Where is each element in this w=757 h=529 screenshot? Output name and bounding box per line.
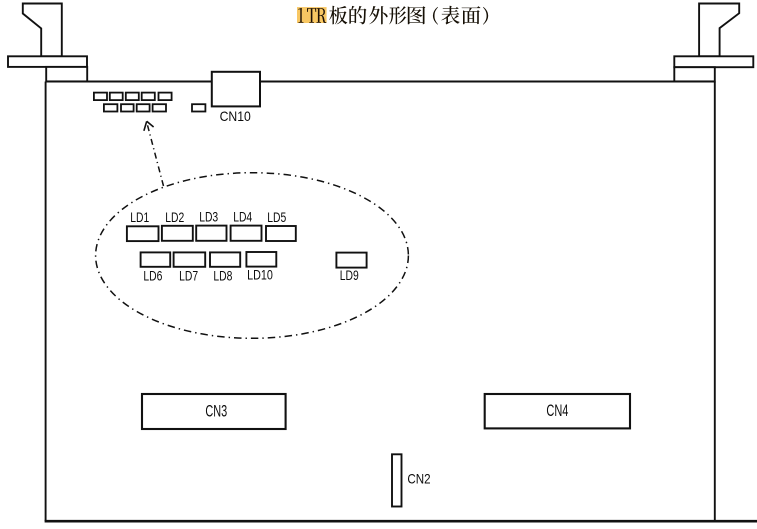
svg-text:LD1: LD1 xyxy=(130,210,149,225)
svg-text:CN2: CN2 xyxy=(407,470,430,486)
svg-text:LD2: LD2 xyxy=(165,210,184,225)
svg-text:LD6: LD6 xyxy=(143,268,162,283)
svg-text:LD9: LD9 xyxy=(340,268,359,283)
svg-text:LD3: LD3 xyxy=(199,210,218,225)
svg-text:CN3: CN3 xyxy=(205,403,227,421)
svg-text:CN10: CN10 xyxy=(220,108,251,124)
svg-text:LD4: LD4 xyxy=(233,210,252,225)
svg-text:LD10: LD10 xyxy=(247,267,273,282)
svg-text:LD5: LD5 xyxy=(267,210,286,225)
svg-text:LD7: LD7 xyxy=(179,269,198,284)
svg-text:CN4: CN4 xyxy=(546,402,568,420)
svg-text:LD8: LD8 xyxy=(213,269,232,284)
